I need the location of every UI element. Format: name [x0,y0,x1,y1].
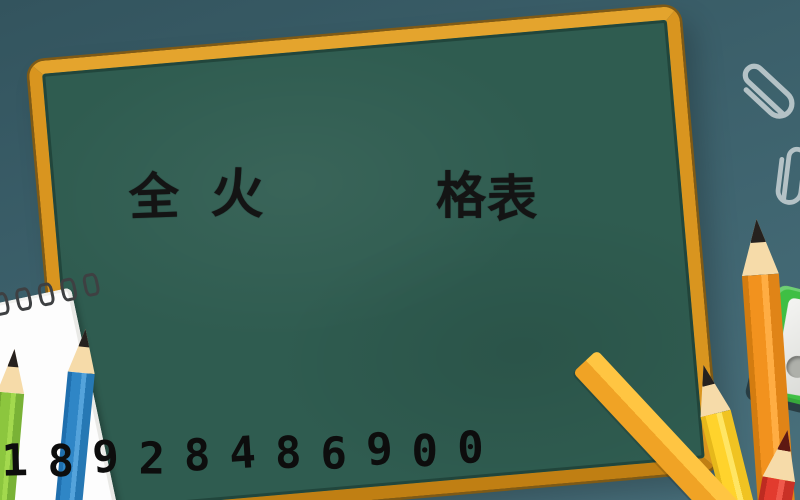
paperclip-icon [767,136,800,221]
pencil-tip [0,348,28,394]
pencil-graphite [777,429,794,452]
pencil-tip [738,218,779,276]
pencil-graphite [7,349,20,368]
spiral-ring [14,286,33,312]
pencil-graphite [78,328,91,347]
pencil-graphite [749,218,766,243]
pencil-graphite [697,363,715,387]
spiral-ring [0,291,11,317]
phone-digit: 8 [265,428,312,480]
phone-digit: 9 [82,431,131,484]
phone-digit: 8 [174,431,221,483]
phone-digit: 0 [447,423,494,475]
phone-digit: 8 [37,437,83,488]
pencil-tip [68,328,99,374]
phone-digit: 6 [311,429,357,480]
phone-digit: 1 [0,436,38,488]
paperclip-icon [722,45,800,139]
illustration-canvas: 全 火 格 表 [0,0,800,500]
phone-digit: 9 [355,424,404,477]
phone-digit: 2 [129,434,175,485]
phone-digit: 0 [402,427,448,478]
spiral-ring [59,277,78,303]
spiral-ring [36,282,55,308]
sharpener-hole [785,354,800,379]
phone-digit: 4 [218,428,267,481]
